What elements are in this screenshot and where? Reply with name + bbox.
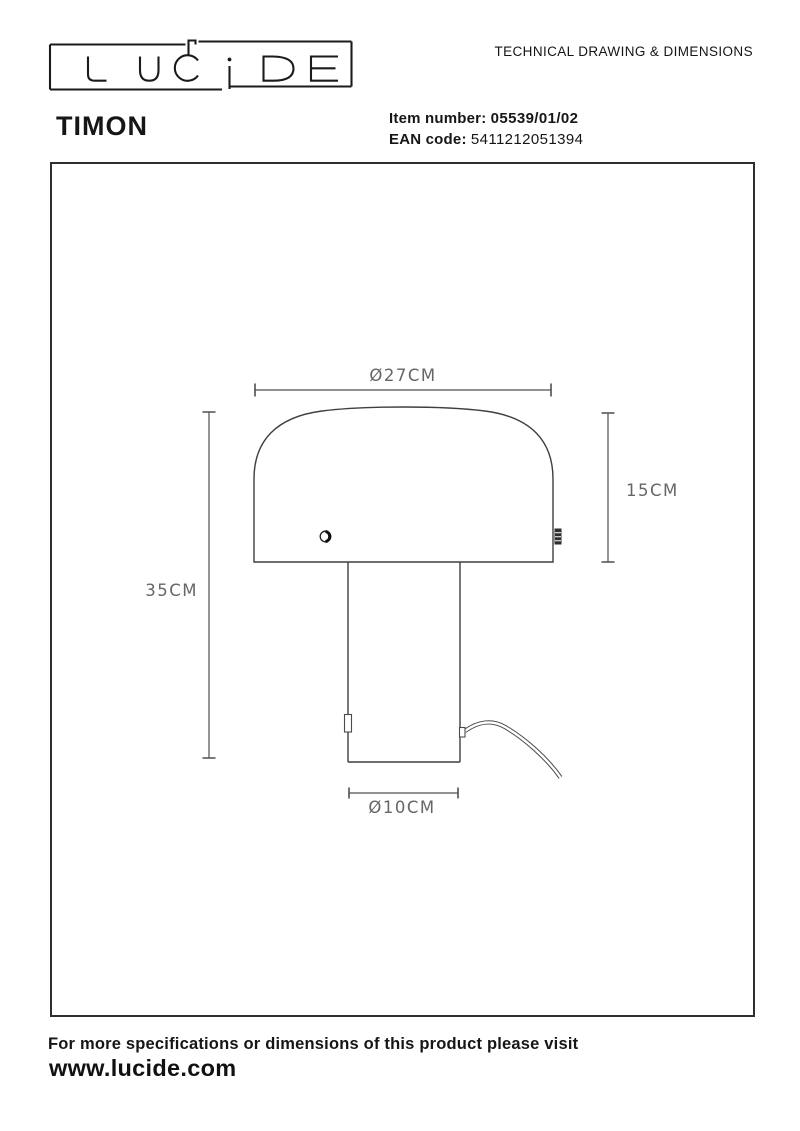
dimension-base-diameter [349, 788, 458, 799]
document-title: TECHNICAL DRAWING & DIMENSIONS [494, 44, 753, 59]
knob-detail [320, 531, 331, 542]
product-name: TIMON [56, 111, 148, 142]
technical-drawing-page: LUCIDE TECHNICAL DRAWING & DIMENS [0, 0, 800, 1131]
item-number-label: Item number: [389, 110, 486, 127]
lamp-shade-outline [254, 407, 553, 562]
switch-detail-base [345, 715, 352, 733]
cord-outlet [460, 728, 466, 738]
dimension-label-shade-height: 15CM [626, 481, 679, 500]
item-number-value: 05539/01/02 [491, 110, 579, 127]
item-number-row: Item number: 05539/01/02 [389, 108, 583, 129]
lamp-base-outline [348, 562, 460, 762]
dimension-shade-height [602, 413, 615, 562]
footer-note: For more specifications or dimensions of… [48, 1035, 578, 1054]
logo-box [50, 42, 352, 90]
dimension-top-diameter [255, 384, 551, 397]
ean-code-label: EAN code: [389, 131, 467, 148]
dimension-label-base-diameter: Ø10CM [368, 798, 435, 817]
power-cord [460, 722, 561, 777]
switch-detail-shade [555, 529, 562, 545]
dimension-label-total-height: 35CM [145, 581, 198, 600]
product-meta: Item number: 05539/01/02 EAN code: 54112… [389, 108, 583, 150]
ean-code-value: 5411212051394 [471, 131, 584, 148]
dimension-total-height [203, 412, 216, 758]
lucide-logo: LUCIDE [48, 35, 353, 97]
logo-i-dot [228, 58, 232, 62]
lamp-technical-drawing: Ø27CM 15CM 35CM Ø10CM [50, 162, 755, 1017]
dimension-label-shade-diameter: Ø27CM [369, 366, 436, 385]
ean-code-row: EAN code: 5411212051394 [389, 129, 583, 150]
logo-letters [88, 41, 338, 90]
website-link[interactable]: www.lucide.com [49, 1055, 236, 1082]
